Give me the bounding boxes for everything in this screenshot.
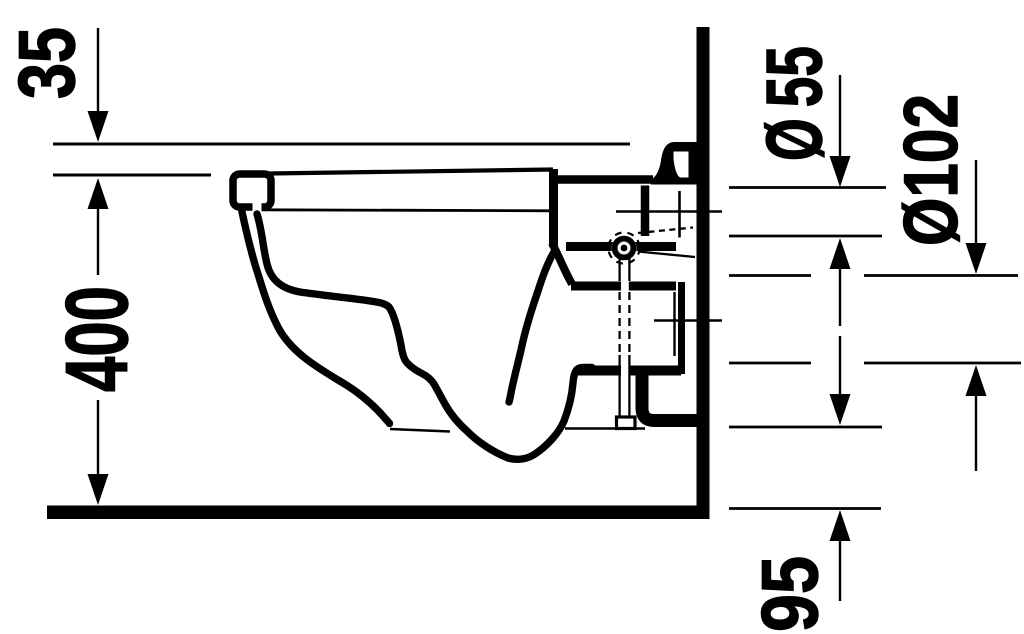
svg-text:Ø102: Ø102 <box>889 94 974 246</box>
svg-text:35: 35 <box>2 27 91 99</box>
svg-text:400: 400 <box>47 286 146 392</box>
svg-text:95: 95 <box>745 556 834 632</box>
svg-text:Ø 55: Ø 55 <box>749 46 838 161</box>
